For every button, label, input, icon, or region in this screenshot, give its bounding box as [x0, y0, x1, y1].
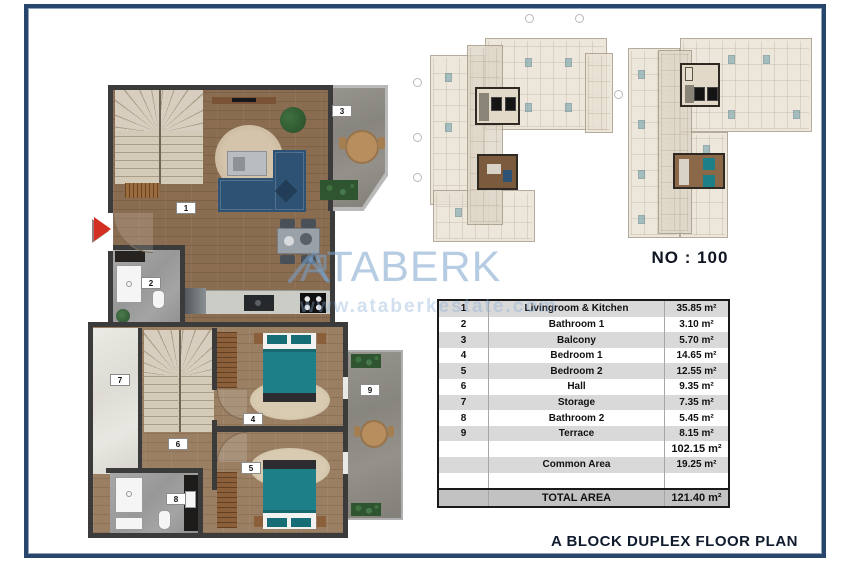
unit-number-bubble [413, 78, 422, 87]
unit-number-bubble [525, 14, 534, 23]
unit-bed-marker [445, 123, 452, 132]
table-row-total: TOTAL AREA 121.40 m² [439, 488, 728, 506]
balcony-chair [339, 137, 346, 149]
unit-bed-marker [793, 110, 800, 119]
shower-drain [126, 281, 132, 287]
bed-footboard [263, 393, 316, 402]
nightstand [317, 333, 326, 344]
kitchen-sink [244, 295, 274, 311]
room-label-bedroom2: 5 [241, 462, 261, 474]
bathroom1-wall [180, 245, 185, 332]
cell-area: 5.45 m² [665, 410, 728, 426]
unit-bed-marker [525, 103, 532, 112]
cell-room: Bedroom 2 [489, 363, 665, 379]
bed-blanket [263, 349, 316, 393]
toilet [158, 510, 171, 530]
unit-bed-marker [565, 58, 572, 67]
potted-plant [280, 107, 306, 133]
nightstand [254, 333, 263, 344]
sofa-chaise [273, 150, 306, 212]
table-row: 4 Bedroom 1 14.65 m² [439, 348, 728, 364]
unit-stair [479, 93, 489, 121]
unit-fixture [694, 87, 705, 101]
unit-bed-marker [638, 215, 645, 224]
cell-number [439, 490, 489, 506]
stair-flight-left [144, 375, 178, 432]
unit-hall [685, 67, 693, 81]
floor-plan-sheet: 1 2 3 [0, 0, 850, 566]
unit-stair [685, 85, 694, 103]
plate [284, 236, 294, 246]
watermark-brand: ATABERK [288, 246, 501, 289]
bed-pillow [267, 518, 287, 527]
unit-bed-marker [728, 110, 735, 119]
balcony-table [345, 130, 379, 164]
cell-area: 12.55 m² [665, 363, 728, 379]
room-label-terrace: 9 [360, 384, 380, 396]
unit-bed-marker [565, 103, 572, 112]
coffee-table [227, 151, 267, 176]
bath-plant [116, 309, 130, 323]
toilet [152, 290, 165, 309]
shower-drain [126, 491, 132, 497]
cell-room: TOTAL AREA [489, 490, 665, 506]
entrance-arrow-icon [94, 217, 111, 241]
terrace-window [343, 452, 348, 474]
tv [232, 98, 256, 102]
cell-number: 7 [439, 395, 489, 411]
cell-number [439, 473, 489, 489]
sink-drain [255, 300, 261, 306]
cell-number: 4 [439, 348, 489, 364]
bed-pillow [291, 518, 311, 527]
stair-divider [159, 90, 161, 184]
unit-bed [703, 158, 715, 170]
unit-rug [487, 164, 501, 174]
unit-number-bubble [413, 133, 422, 142]
bedroom1-wardrobe [217, 332, 237, 388]
bath-sink [185, 491, 196, 508]
table-row: 8 Bathroom 2 5.45 m² [439, 410, 728, 426]
table-row: 5 Bedroom 2 12.55 m² [439, 363, 728, 379]
table-row-common-area: Common Area 19.25 m² [439, 457, 728, 473]
unit-bed-marker [525, 58, 532, 67]
cell-number: 6 [439, 379, 489, 395]
cell-room: Bathroom 2 [489, 410, 665, 426]
cell-area: 9.35 m² [665, 379, 728, 395]
terrace-planter [351, 354, 381, 368]
area-table: 1 Livingroom & Kitchen 35.85 m² 2 Bathro… [437, 299, 730, 508]
cell-area: 5.70 m² [665, 332, 728, 348]
cell-number: 8 [439, 410, 489, 426]
unit-storage [679, 159, 689, 185]
building-wing [585, 53, 613, 133]
table-row: 6 Hall 9.35 m² [439, 379, 728, 395]
staircase [115, 90, 203, 184]
unit-bed-marker [445, 73, 452, 82]
cell-number: 5 [439, 363, 489, 379]
room-label-hall: 6 [168, 438, 188, 450]
cell-area: 35.85 m² [665, 301, 728, 317]
unit-fixture [505, 97, 516, 111]
unit-number: NO : 100 [638, 248, 742, 268]
bedroom2-wardrobe [217, 472, 237, 528]
bath-mat [115, 517, 143, 530]
vanity-counter [115, 251, 145, 262]
stair-flight-left [115, 131, 159, 184]
unit-bed-marker [455, 208, 462, 217]
key-plan-lower-floor [425, 28, 617, 246]
cell-room [489, 441, 665, 457]
storage-floor [93, 328, 138, 474]
unit-bed-marker [728, 55, 735, 64]
room-label-storage: 7 [110, 374, 130, 386]
terrace-chair [388, 426, 394, 437]
cell-number [439, 457, 489, 473]
unit-number-bubble [413, 173, 422, 182]
highlighted-unit-stairs [680, 63, 720, 107]
cell-room: Bedroom 1 [489, 348, 665, 364]
nightstand [254, 516, 263, 527]
table-row-subtotal: 102.15 m² [439, 441, 728, 457]
building-corridor [467, 45, 503, 225]
unit-fixture [707, 87, 718, 101]
cell-area: 7.35 m² [665, 395, 728, 411]
terrace-planter [351, 503, 381, 516]
bed-pillow [267, 335, 287, 344]
terrace-table [360, 420, 388, 448]
cell-area: 8.15 m² [665, 426, 728, 442]
unit-sofa [503, 170, 512, 182]
bed-blanket [263, 469, 316, 513]
bed [263, 460, 316, 529]
room-label-bathroom1: 2 [141, 277, 161, 289]
table-row-spacer [439, 473, 728, 489]
cell-room: Terrace [489, 426, 665, 442]
cell-room: Hall [489, 379, 665, 395]
key-plan-upper-floor [628, 30, 820, 242]
table-row: 3 Balcony 5.70 m² [439, 332, 728, 348]
cell-area [665, 473, 728, 489]
unit-fixture [491, 97, 502, 111]
sheet-title: A BLOCK DUPLEX FLOOR PLAN [551, 533, 798, 550]
cell-area: 19.25 m² [665, 457, 728, 473]
watermark-url: www.ataberkestate.com [300, 296, 576, 318]
cell-number: 2 [439, 317, 489, 333]
terrace-door-opening [343, 377, 348, 399]
highlighted-unit-living [477, 154, 518, 190]
tray [233, 157, 245, 171]
cell-room: Balcony [489, 332, 665, 348]
balcony-chair [378, 137, 385, 149]
stair-flight-right [180, 375, 214, 432]
cell-area: 3.10 m² [665, 317, 728, 333]
lower-floor-plan: 4 5 6 7 8 [88, 322, 403, 538]
cell-room: Common Area [489, 457, 665, 473]
stair-flight-right [161, 131, 203, 184]
bathroom2-wall [198, 468, 203, 533]
bed-footboard [263, 460, 316, 469]
watermark-brand-text: ATABERK [300, 246, 501, 289]
upper-floor-plan: 1 2 3 [108, 85, 388, 332]
bed [263, 333, 316, 402]
cell-area: 121.40 m² [665, 490, 728, 506]
fridge [182, 288, 206, 314]
balcony-planter [320, 180, 358, 200]
highlighted-unit-bedrooms [673, 153, 725, 189]
shower-tray [115, 477, 143, 513]
terrace-inner-wall [343, 350, 348, 520]
cell-number: 9 [439, 426, 489, 442]
unit-bed-marker [638, 70, 645, 79]
room-label-balcony: 3 [332, 105, 352, 117]
storage-wall [138, 328, 142, 478]
unit-bed [703, 175, 715, 187]
cell-number: 3 [439, 332, 489, 348]
unit-bed-marker [763, 55, 770, 64]
nightstand [317, 516, 326, 527]
dining-chair [280, 219, 295, 228]
between-bedrooms-wall [217, 426, 348, 432]
room-label-bedroom1: 4 [243, 413, 263, 425]
cell-number [439, 441, 489, 457]
table-row: 7 Storage 7.35 m² [439, 395, 728, 411]
unit-bed-marker [638, 120, 645, 129]
cell-area: 14.65 m² [665, 348, 728, 364]
bed-pillow [291, 335, 311, 344]
highlighted-unit-kitchen [475, 87, 520, 125]
cell-room: Bathroom 1 [489, 317, 665, 333]
cell-room [489, 473, 665, 489]
shower-tray [116, 265, 142, 303]
table-row: 9 Terrace 8.15 m² [439, 426, 728, 442]
cell-room: Storage [489, 395, 665, 411]
room-label-bathroom2: 8 [166, 493, 186, 505]
terrace-chair [354, 426, 360, 437]
table-row: 2 Bathroom 1 3.10 m² [439, 317, 728, 333]
staircase-upper [144, 330, 214, 432]
shoe-bench [125, 183, 159, 198]
unit-bed-marker [638, 170, 645, 179]
unit-number-bubble [614, 90, 623, 99]
dining-chair [301, 219, 316, 228]
bath-vanity [184, 475, 198, 531]
room-label-living: 1 [176, 202, 196, 214]
unit-number-bubble [575, 14, 584, 23]
cell-area: 102.15 m² [665, 441, 728, 457]
stair-divider [179, 330, 181, 432]
